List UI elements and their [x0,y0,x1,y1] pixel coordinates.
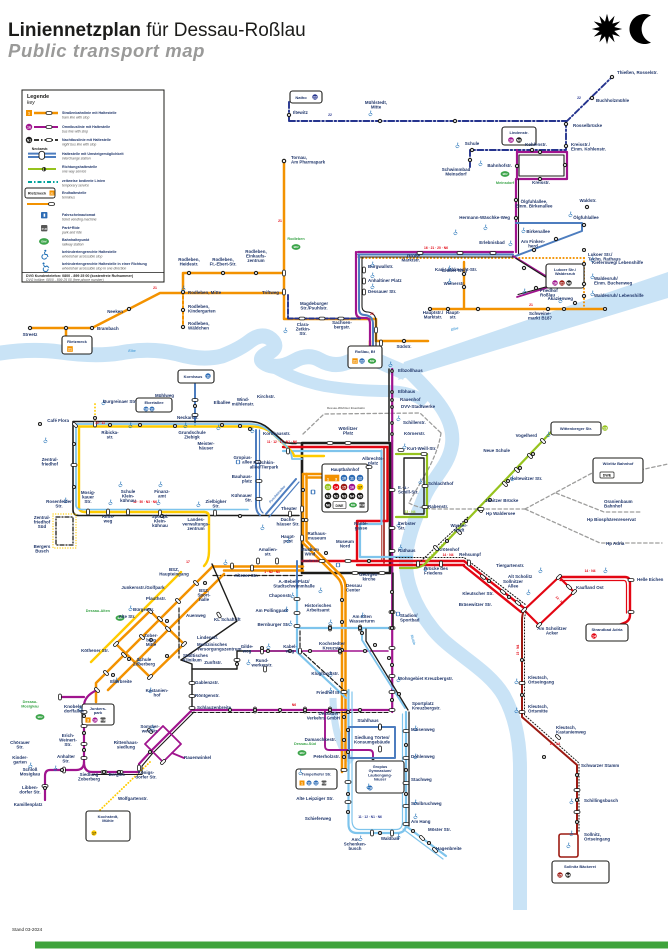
svg-text:Bernburger Str.: Bernburger Str. [257,622,290,627]
svg-text:Hagenbreite: Hagenbreite [436,846,462,851]
svg-text:temporary service: temporary service [62,184,89,188]
svg-text:Café Flora: Café Flora [47,418,69,423]
svg-text:Karl-Liebknecht-Str.: Karl-Liebknecht-Str. [435,267,477,272]
svg-text:16 · 21 · 20 · N6: 16 · 21 · 20 · N6 [424,246,448,250]
svg-text:Schillingsbusch: Schillingsbusch [584,798,618,803]
svg-text:15: 15 [342,485,346,489]
svg-text:Kaufland Ost: Kaufland Ost [576,585,604,590]
svg-text:Bahnhofstr.: Bahnhofstr. [487,163,512,168]
svg-text:Rietzmeck: Rietzmeck [28,192,47,196]
svg-text:11: 11 [307,781,311,785]
svg-text:11 · 12 · 17 · N1 · N6: 11 · 12 · 17 · N1 · N6 [267,440,297,444]
svg-text:Stadion/Sportbad: Stadion/Sportbad [400,613,420,623]
svg-text:BergersBusch: BergersBusch [34,544,51,554]
svg-text:Ölgfuhlallee: Ölgfuhlallee [573,214,599,220]
svg-text:Hp Biosphärenreservat: Hp Biosphärenreservat [587,517,636,522]
svg-text:Königs-dorfer Str.: Königs-dorfer Str. [135,770,156,780]
svg-text:21: 21 [278,219,282,223]
svg-text:N5: N5 [358,494,363,498]
svg-text:1 · N2 · N3: 1 · N2 · N3 [264,570,280,574]
svg-text:Lindenstr.: Lindenstr. [509,130,528,135]
svg-text:Theater: Theater [281,506,297,511]
svg-text:N4: N4 [350,494,355,498]
svg-text:Gablenzstr.: Gablenzstr. [195,680,219,685]
svg-text:1: 1 [28,112,30,116]
svg-text:17: 17 [186,560,190,564]
svg-text:SiedlungZoberberg: SiedlungZoberberg [78,772,100,782]
svg-text:16: 16 [27,125,31,129]
svg-text:Natho: Natho [295,95,307,100]
svg-text:Sachsen-bergstr.: Sachsen-bergstr. [332,320,352,330]
svg-text:HistorischesArbeitsamt: HistorischesArbeitsamt [305,603,332,613]
svg-text:15 · N4: 15 · N4 [516,645,520,656]
svg-text:Kurt-Weill-Str.: Kurt-Weill-Str. [407,446,437,451]
svg-text:Rauenhof: Rauenhof [400,397,421,402]
svg-text:Goltewitzer Str.: Goltewitzer Str. [510,476,542,481]
svg-text:Rehsumpf: Rehsumpf [459,552,481,557]
svg-text:Endhaltestelle: Endhaltestelle [62,191,86,195]
svg-text:Schlauzenbreite: Schlauzenbreite [197,705,232,710]
svg-text:Triftweg: Triftweg [262,290,279,295]
svg-text:Bräsewitzer Str.: Bräsewitzer Str. [459,602,492,607]
svg-text:Schule: Schule [465,141,480,146]
svg-text:key: key [27,100,35,106]
svg-text:Bhf: Bhf [294,245,299,249]
svg-text:Nachtbuslinie mit Haltestelle: Nachtbuslinie mit Haltestelle [62,138,111,142]
svg-text:11 · 12 · N1 · N6: 11 · 12 · N1 · N6 [358,815,382,819]
svg-text:Mühlweg: Mühlweg [155,393,174,398]
svg-text:wheelchair accessible stop in: wheelchair accessible stop in one direct… [62,267,126,271]
svg-text:Lindenstr.: Lindenstr. [197,635,218,640]
svg-text:Kleutsch,Ortsmitte: Kleutsch,Ortsmitte [528,704,548,714]
svg-text:Wolfgartenstr.: Wolfgartenstr. [118,796,148,801]
svg-text:Neckarstr.: Neckarstr. [177,415,198,420]
svg-text:Wörlitz Bahnhof: Wörlitz Bahnhof [603,461,634,466]
svg-text:Streetz: Streetz [23,332,39,337]
svg-text:P·R: P·R [359,503,365,507]
svg-text:tram line with stop: tram line with stop [62,116,89,120]
svg-text:behindertengerechte Haltestell: behindertengerechte Haltestelle [62,250,117,254]
svg-text:22: 22 [313,95,317,99]
svg-text:16: 16 [553,281,557,285]
svg-text:Tiergartenstr.: Tiergartenstr. [496,563,524,568]
svg-text:Schillerstr.: Schillerstr. [403,420,426,425]
svg-text:Bhf: Bhf [370,359,375,363]
svg-text:Körnerstr.: Körnerstr. [404,431,425,436]
svg-text:Meister-häuser: Meister-häuser [197,441,215,451]
svg-text:Nante-gasse: Nante-gasse [354,521,368,531]
svg-text:Anhaltiner Platz: Anhaltiner Platz [368,278,402,283]
svg-text:Strandbad Adria: Strandbad Adria [592,627,624,632]
svg-text:Siedlung Törten/Konsumgebäude: Siedlung Törten/Konsumgebäude [354,735,391,745]
svg-text:Fahrscheinautomat: Fahrscheinautomat [62,213,96,217]
svg-text:Hermann-Wäschke-Weg: Hermann-Wäschke-Weg [459,215,510,220]
svg-text:Dessau-Mosigkau: Dessau-Mosigkau [21,700,39,709]
svg-text:Rodleben,Einkaufs-zentrum: Rodleben,Einkaufs-zentrum [245,249,266,263]
svg-text:Iltewitz: Iltewitz [293,110,309,115]
svg-text:Kamillenplatz: Kamillenplatz [14,802,43,807]
svg-text:Rittenhaus-siedlung: Rittenhaus-siedlung [114,740,139,750]
svg-text:Park+Ride: Park+Ride [62,226,80,230]
svg-text:Zentral-friedhof: Zentral-friedhof [41,457,58,467]
svg-text:14 · N4: 14 · N4 [443,553,454,557]
svg-text:Auenweg: Auenweg [186,613,206,618]
svg-text:16: 16 [93,718,97,722]
svg-text:Hauptbahnhof: Hauptbahnhof [331,467,360,472]
svg-text:13: 13 [603,426,607,430]
svg-text:KL Schaftrift: KL Schaftrift [214,617,241,622]
svg-text:Wienerstr.: Wienerstr. [444,281,465,286]
svg-text:21: 21 [353,359,357,363]
svg-text:Knobels-dorffallee: Knobels-dorffallee [64,704,85,714]
svg-text:DWE: DWE [603,473,612,477]
svg-text:Buchholzmühle: Buchholzmühle [596,98,630,103]
svg-text:Rathaus-museum: Rathaus-museum [308,531,328,541]
svg-text:night bus line with stop: night bus line with stop [62,143,96,147]
svg-text:12: 12 [358,476,362,480]
svg-text:Public transport map: Public transport map [8,40,205,61]
svg-text:Peterholzstr.: Peterholzstr. [313,754,340,759]
svg-text:21: 21 [560,281,564,285]
svg-text:Krötenhof: Krötenhof [438,547,460,552]
svg-text:16: 16 [350,485,354,489]
svg-text:Rietzmeck: Rietzmeck [67,339,88,344]
svg-text:Ellerbreite: Ellerbreite [110,679,132,684]
svg-text:Rathaus: Rathaus [398,548,416,553]
svg-text:14 · N4: 14 · N4 [550,742,561,746]
svg-text:Elballee: Elballee [214,400,231,405]
svg-text:Bhf: Bhf [300,751,305,755]
svg-text:Neue Schule: Neue Schule [483,448,510,453]
svg-text:Stahlhaus: Stahlhaus [357,718,379,723]
svg-text:SchwimmbadMeinsdorf: SchwimmbadMeinsdorf [442,167,471,177]
svg-text:Lukoer Str./Waldesruh: Lukoer Str./Waldesruh [554,267,577,276]
svg-text:10: 10 [342,476,346,480]
svg-text:Möster Str.: Möster Str. [428,827,451,832]
svg-text:BSZ,Sport-halle: BSZ,Sport-halle [197,588,211,602]
svg-text:12: 12 [314,781,318,785]
svg-text:N4: N4 [566,873,571,877]
svg-text:Ebertallee: Ebertallee [144,400,164,405]
svg-text:Südstr.: Südstr. [396,344,411,349]
svg-text:Am Pollingpark: Am Pollingpark [255,608,288,613]
svg-text:Plauthstr.: Plauthstr. [146,596,166,601]
svg-text:A.-Bebel-Platz/Stadtschwimmhal: A.-Bebel-Platz/Stadtschwimmhalle [273,579,315,589]
svg-text:Liniennetzplan für Dessau-Roßl: Liniennetzplan für Dessau-Roßlau [8,20,306,41]
svg-text:Kinder-garten: Kinder-garten [12,755,28,765]
svg-text:Erlebnisbad: Erlebnisbad [479,240,505,245]
svg-text:Röntgenstr.: Röntgenstr. [195,693,220,698]
svg-text:Chaponstr.: Chaponstr. [269,593,292,598]
svg-text:N2: N2 [334,494,339,498]
svg-text:Alte Str.: Alte Str. [119,614,136,619]
svg-text:Schieferweg: Schieferweg [305,816,331,821]
svg-text:Waldesruh/ Lebenshilfe: Waldesruh/ Lebenshilfe [594,293,644,298]
svg-text:Bahnhaltepunkt: Bahnhaltepunkt [62,238,90,242]
svg-text:Schlachthof: Schlachthof [428,481,454,486]
svg-text:Dessau-Alten: Dessau-Alten [86,609,111,613]
svg-text:Bergstr.: Bergstr. [109,772,126,777]
svg-text:Schwarzer Stamm: Schwarzer Stamm [581,763,619,768]
svg-text:Köthener Str.: Köthener Str. [81,648,109,653]
svg-text:Kornhausstr.: Kornhausstr. [263,431,290,436]
svg-text:1: 1 [301,781,303,785]
svg-text:Dohlenweg: Dohlenweg [411,754,435,759]
svg-text:17: 17 [92,831,96,835]
svg-text:21: 21 [529,303,533,307]
svg-text:Omnibuslinie mit Haltestelle: Omnibuslinie mit Haltestelle [62,125,110,129]
svg-text:Am Hang: Am Hang [411,819,431,824]
svg-text:Akazienweg: Akazienweg [548,296,574,301]
svg-text:Bhf: Bhf [503,172,508,176]
svg-text:N1: N1 [326,494,331,498]
svg-text:Elbe: Elbe [128,349,136,353]
svg-text:park and ride: park and ride [61,231,82,235]
svg-text:MagdeburgerStr./Psuhlstr.: MagdeburgerStr./Psuhlstr. [300,301,328,311]
svg-text:Wittenberger Str.: Wittenberger Str. [560,426,592,431]
svg-text:Puschkin-allee/Tierpark: Puschkin-allee/Tierpark [250,460,279,470]
svg-text:Kreisstr.: Kreisstr. [532,180,550,185]
svg-text:Neeken: Neeken [107,309,123,314]
svg-text:15: 15 [558,873,562,877]
svg-text:Rodleben,Ft.-Ebert-Str.: Rodleben,Ft.-Ebert-Str. [210,257,237,267]
svg-text:Burgwallstr.: Burgwallstr. [368,264,393,269]
svg-text:Kleutscher Str.: Kleutscher Str. [462,591,493,596]
svg-text:22: 22 [577,96,581,100]
svg-text:N6: N6 [567,281,572,285]
svg-text:10: 10 [144,407,148,411]
svg-text:Waldstr.: Waldstr. [579,198,596,203]
svg-text:14 · N4: 14 · N4 [585,569,596,573]
svg-text:Kavalierstr.: Kavalierstr. [301,559,318,563]
svg-text:Soolbruchweg: Soolbruchweg [411,801,442,806]
svg-text:13: 13 [326,485,330,489]
svg-text:Bhf: Bhf [351,503,355,507]
svg-text:Sollnitz Bäckerei: Sollnitz Bäckerei [564,864,596,869]
svg-text:Stachweg: Stachweg [411,777,432,782]
svg-text:Rabenstr.: Rabenstr. [428,504,448,509]
svg-text:zeitweise bediente Linien: zeitweise bediente Linien [62,179,105,183]
svg-text:Tempelhofer Str.: Tempelhofer Str. [302,773,332,777]
svg-text:Meinsdorf: Meinsdorf [496,181,515,185]
svg-text:N6: N6 [517,138,522,142]
svg-text:ticket vending machine: ticket vending machine [62,218,97,222]
svg-text:Kiefernweg/ Lebenshilfe: Kiefernweg/ Lebenshilfe [592,260,644,265]
svg-text:Altener Str.: Altener Str. [234,573,258,578]
svg-text:Kirchstr.: Kirchstr. [257,394,275,399]
svg-text:Marktstr.: Marktstr. [402,258,421,263]
svg-text:bus line with stop: bus line with stop [62,130,88,134]
svg-text:Rodleben,Wäldchen: Rodleben,Wäldchen [188,321,209,331]
svg-text:Stand 03-2024: Stand 03-2024 [12,927,43,932]
svg-text:21: 21 [50,191,54,195]
svg-text:Sommer-weinstr.: Sommer-weinstr. [140,724,160,734]
svg-text:Helle Eichen: Helle Eichen [637,577,664,582]
svg-text:wheelchair accessible stop: wheelchair accessible stop [62,255,102,259]
svg-text:Sportpl.Klein-kühnau: Sportpl.Klein-kühnau [152,514,169,528]
svg-text:Maisenweg: Maisenweg [411,727,435,732]
svg-text:DVG hotline: 0800 - 899 25 00: DVG hotline: 0800 - 899 25 00 (free phon… [26,278,104,282]
svg-text:Birkenallee: Birkenallee [526,229,550,234]
svg-text:behindertengerechte Haltestell: behindertengerechte Haltestelle in einer… [62,262,147,266]
svg-text:interchange station: interchange station [62,157,91,161]
svg-text:11: 11 [350,476,354,480]
svg-text:N6: N6 [292,703,296,707]
svg-text:DVV-Stadtwerke: DVV-Stadtwerke [401,404,436,409]
svg-text:N3: N3 [342,494,347,498]
svg-text:Friedhof III: Friedhof III [316,690,339,695]
svg-text:Damaschkestr.: Damaschkestr. [305,737,336,742]
svg-text:Burgreinaer Str.: Burgreinaer Str. [103,399,137,404]
svg-text:Bürgerstr.: Bürgerstr. [133,607,154,612]
svg-text:Dessau-Süd: Dessau-Süd [294,742,317,746]
svg-text:Libben-dorfer Str.: Libben-dorfer Str. [19,785,40,795]
svg-text:Rodleben,Heidestr.: Rodleben,Heidestr. [178,257,199,267]
svg-text:Kornhaus: Kornhaus [184,374,203,379]
svg-text:Haltestelle mit Umsteigemöglic: Haltestelle mit Umsteigemöglichkeit [62,152,124,156]
svg-text:21: 21 [153,286,157,290]
svg-text:Jonitzer Brücke: Jonitzer Brücke [485,498,519,503]
svg-text:Rodleben: Rodleben [287,237,305,241]
svg-text:Alte Leipziger Str.: Alte Leipziger Str. [296,796,333,801]
svg-text:Junkersstr./Golfpark: Junkersstr./Golfpark [121,585,165,590]
svg-text:Am AltenWasserturm: Am AltenWasserturm [349,614,375,624]
svg-text:13 · N4: 13 · N4 [405,510,416,514]
svg-text:Rauenwinkel: Rauenwinkel [184,755,211,760]
svg-text:21: 21 [68,347,72,351]
svg-text:N1: N1 [27,138,31,142]
svg-text:3: 3 [87,718,89,722]
svg-text:DessauCenter: DessauCenter [346,583,362,593]
svg-text:Wohngebiet Kreuzbergstr.: Wohngebiet Kreuzbergstr. [398,676,453,681]
svg-text:Brambach: Brambach [97,326,119,331]
svg-text:terminus: terminus [62,196,75,200]
svg-text:17: 17 [358,485,362,489]
svg-text:Waldbad: Waldbad [381,836,400,841]
svg-text:Roßlau, Bf: Roßlau, Bf [355,349,376,354]
svg-text:Thießen, Rosselstr.: Thießen, Rosselstr. [617,70,658,75]
svg-text:22: 22 [360,359,364,363]
svg-text:Straßenbahnlinie mit Haltestel: Straßenbahnlinie mit Haltestelle [62,111,117,115]
svg-text:Schweine-markt B187: Schweine-markt B187 [528,311,552,321]
svg-text:Hp Waldersee: Hp Waldersee [486,511,516,516]
svg-text:11: 11 [150,407,154,411]
svg-text:Dessauer Str.: Dessauer Str. [368,289,396,294]
svg-text:KochstedterKreuzstr.: KochstedterKreuzstr. [319,641,345,651]
svg-text:Vogelherd: Vogelherd [516,433,538,438]
svg-text:Neckarstr.: Neckarstr. [32,147,48,151]
svg-text:Klughardtstr.: Klughardtstr. [311,671,339,676]
svg-text:Rosselbrücke: Rosselbrücke [573,123,603,128]
svg-text:one way service: one way service [62,170,86,174]
svg-text:14: 14 [592,634,596,638]
svg-text:Rodleben, Mitte: Rodleben, Mitte [188,290,222,295]
svg-text:Elbhaus: Elbhaus [398,389,416,394]
svg-text:N6: N6 [326,503,331,507]
svg-text:12 · 50 · N3 · N6: 12 · 50 · N3 · N6 [133,500,157,504]
svg-text:DWE: DWE [336,504,345,508]
svg-text:railway station: railway station [62,243,84,247]
svg-text:Hp Adria: Hp Adria [606,541,625,546]
svg-text:22: 22 [328,113,332,117]
svg-text:P·R: P·R [42,227,48,231]
svg-text:Richtungshaltestelle: Richtungshaltestelle [62,165,97,169]
svg-text:SchuleKlein-kühnau: SchuleKlein-kühnau [120,489,136,503]
svg-text:14: 14 [334,485,338,489]
svg-text:P·R: P·R [321,781,327,785]
svg-text:11: 11 [206,374,210,378]
svg-text:Zunftstr.: Zunftstr. [204,660,222,665]
svg-text:Kohlenstr.: Kohlenstr. [525,142,547,147]
svg-text:P·R: P·R [100,718,106,722]
svg-text:Elbzollhaus: Elbzollhaus [398,368,423,373]
svg-text:Hauptstr./Marktstr.: Hauptstr./Marktstr. [423,310,444,320]
svg-text:16: 16 [509,138,513,142]
svg-text:Dessau-Wörlitzer Eisenbahn: Dessau-Wörlitzer Eisenbahn [327,406,365,410]
svg-text:Bhf: Bhf [38,715,43,719]
svg-text:10 · 11: 10 · 11 [95,421,105,425]
svg-text:21: 21 [370,312,374,316]
